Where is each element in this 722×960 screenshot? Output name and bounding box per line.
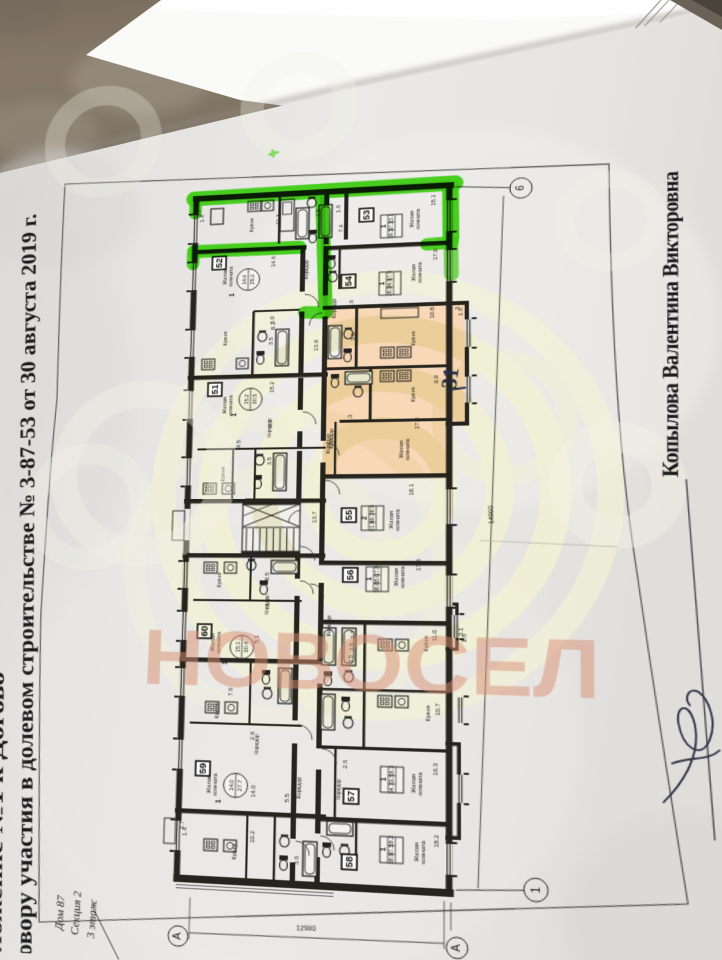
svg-text:12980: 12980 [296, 925, 316, 933]
svg-text:27.7: 27.7 [237, 779, 244, 791]
svg-text:34.7: 34.7 [389, 782, 395, 794]
svg-text:29.2: 29.2 [250, 274, 257, 285]
svg-text:комната: комната [421, 841, 427, 865]
svg-text:А: А [171, 932, 183, 940]
svg-text:Коридор: Коридор [335, 778, 341, 800]
svg-text:Коридор: Коридор [296, 776, 302, 799]
svg-text:52: 52 [214, 257, 224, 268]
svg-text:2.6: 2.6 [349, 300, 356, 308]
svg-text:3.6: 3.6 [294, 856, 302, 865]
svg-text:15.1: 15.1 [431, 194, 438, 206]
svg-text:Коридор: Коридор [303, 259, 309, 279]
svg-text:А: А [450, 944, 463, 953]
svg-text:16.3: 16.3 [433, 763, 441, 776]
svg-text:1: 1 [216, 799, 223, 803]
svg-text:1.6: 1.6 [458, 307, 465, 316]
svg-text:комната: комната [416, 208, 422, 229]
svg-text:14.0: 14.0 [250, 785, 257, 798]
svg-text:6: 6 [514, 185, 526, 191]
svg-text:Жилая: Жилая [410, 774, 418, 794]
svg-text:14.6: 14.6 [271, 256, 278, 267]
svg-text:1: 1 [529, 886, 542, 893]
svg-text:39.3: 39.3 [388, 228, 394, 238]
svg-text:Копылова Валентина Викторовн: Копылова Валентина Викторовна [657, 171, 683, 478]
svg-text:59: 59 [198, 762, 209, 774]
svg-text:комната: комната [418, 772, 424, 795]
svg-text:НОВОСЕЛ: НОВОСЕЛ [141, 614, 601, 717]
svg-text:комната: комната [396, 509, 402, 531]
svg-text:55: 55 [344, 509, 355, 520]
svg-text:Дом 87: Дом 87 [53, 893, 68, 931]
svg-text:комната: комната [229, 266, 235, 286]
svg-text:1: 1 [230, 293, 237, 297]
svg-text:5.5: 5.5 [284, 793, 291, 802]
svg-text:Секция 2: Секция 2 [69, 890, 85, 935]
svg-text:58: 58 [344, 856, 355, 869]
svg-text:3 этаж: 3 этаж [85, 899, 101, 940]
svg-text:1: 1 [381, 777, 389, 781]
svg-text:14.6: 14.6 [242, 274, 249, 285]
svg-text:14.0: 14.0 [229, 779, 236, 791]
svg-text:10.8: 10.8 [429, 307, 436, 319]
svg-text:4.5: 4.5 [236, 440, 243, 448]
svg-text:1: 1 [381, 847, 389, 851]
svg-text:1.4: 1.4 [182, 827, 189, 836]
svg-text:51: 51 [210, 384, 220, 395]
svg-text:комната: комната [213, 773, 220, 796]
svg-text:53: 53 [361, 209, 372, 220]
svg-text:2.6: 2.6 [249, 731, 256, 740]
svg-text:Кухня: Кухня [249, 218, 256, 233]
svg-text:2.6: 2.6 [342, 759, 350, 768]
svg-text:Приложение №1 к Догово: Приложение №1 к Догово [0, 672, 9, 960]
svg-text:8.5: 8.5 [264, 572, 271, 581]
svg-text:комната: комната [401, 566, 407, 588]
svg-text:11.3: 11.3 [275, 214, 282, 225]
svg-text:17.9: 17.9 [433, 249, 440, 261]
svg-text:7.4: 7.4 [338, 224, 345, 232]
svg-text:38.9: 38.9 [388, 852, 394, 864]
svg-text:Кухня: Кухня [231, 843, 239, 860]
svg-text:Договору участия в долевом стр: Договору участия в долевом строительстве… [12, 213, 42, 960]
svg-text:1.6: 1.6 [336, 205, 343, 213]
svg-text:Жилая: Жилая [413, 842, 421, 862]
svg-text:56: 56 [345, 569, 356, 580]
svg-text:57: 57 [346, 790, 357, 802]
svg-text:17.8: 17.8 [416, 559, 423, 571]
svg-text:Жилая: Жилая [409, 210, 416, 228]
svg-text:10.2: 10.2 [249, 830, 257, 843]
svg-text:3.5: 3.5 [268, 337, 275, 345]
svg-text:18.2: 18.2 [433, 835, 441, 848]
